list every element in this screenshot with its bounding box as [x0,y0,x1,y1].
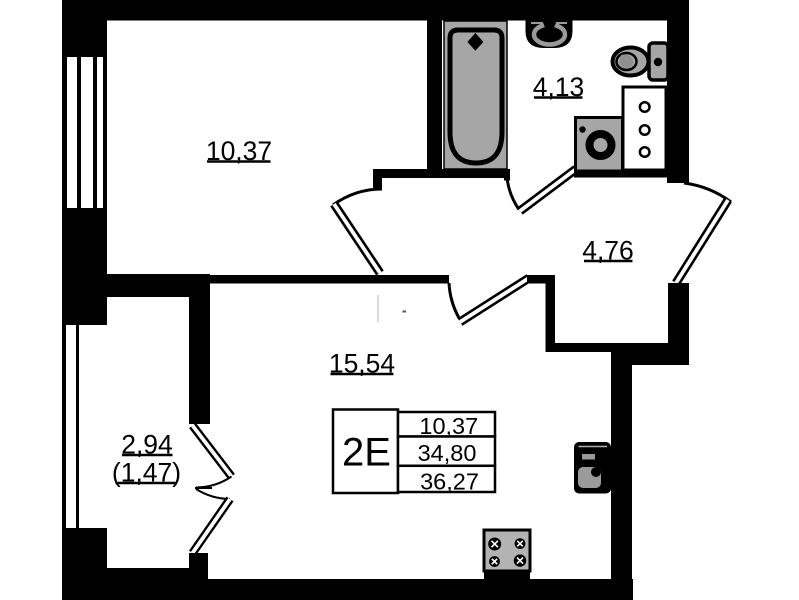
svg-text:2E: 2E [342,431,391,475]
svg-text:36,27: 36,27 [420,469,479,495]
svg-text:34,80: 34,80 [418,440,477,466]
svg-text:10,37: 10,37 [419,413,478,439]
